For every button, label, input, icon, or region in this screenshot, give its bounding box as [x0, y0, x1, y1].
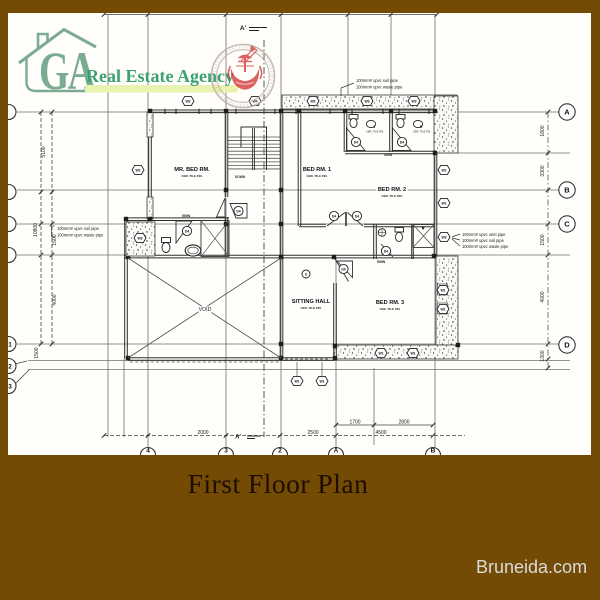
- svg-text:3300: 3300: [540, 165, 546, 176]
- svg-text:CER. TILE FIN.: CER. TILE FIN.: [382, 194, 403, 198]
- svg-text:W2: W2: [135, 168, 140, 172]
- svg-text:D: D: [564, 341, 570, 350]
- svg-text:W3: W3: [137, 236, 142, 240]
- svg-text:1800: 1800: [366, 10, 373, 14]
- svg-text:W3: W3: [364, 99, 369, 103]
- svg-text:A: A: [564, 108, 570, 117]
- svg-text:500N: 500N: [377, 260, 386, 264]
- svg-text:CER. TILE FIN.: CER. TILE FIN.: [413, 130, 431, 134]
- svg-text:VOID: VOID: [199, 307, 212, 313]
- svg-text:W1: W1: [319, 379, 324, 383]
- svg-text:1700: 1700: [349, 420, 360, 426]
- svg-text:A: A: [334, 448, 339, 455]
- svg-text:D4: D4: [384, 249, 388, 253]
- svg-text:4: 4: [146, 448, 150, 455]
- svg-text:2500: 2500: [307, 430, 318, 436]
- svg-text:3: 3: [8, 383, 12, 390]
- svg-text:D4: D4: [236, 209, 240, 213]
- svg-text:10800: 10800: [33, 223, 39, 237]
- svg-text:4000: 4000: [540, 291, 546, 302]
- svg-text:BED RM. 1: BED RM. 1: [303, 167, 331, 173]
- svg-text:S: S: [305, 272, 307, 276]
- svg-text:B: B: [564, 186, 570, 195]
- svg-text:MR. BED RM.: MR. BED RM.: [174, 167, 210, 173]
- svg-text:5100: 5100: [41, 146, 47, 157]
- svg-text:2800: 2800: [398, 420, 409, 426]
- svg-text:2: 2: [278, 448, 282, 455]
- svg-text:2300: 2300: [311, 10, 318, 14]
- svg-text:CER. TILE FIN.: CER. TILE FIN.: [366, 130, 384, 134]
- svg-text:2800: 2800: [123, 10, 130, 14]
- svg-text:W1: W1: [441, 201, 446, 205]
- svg-text:2300: 2300: [250, 10, 257, 14]
- svg-text:W1: W1: [378, 351, 383, 355]
- svg-text:CER. TILE FIN.: CER. TILE FIN.: [307, 174, 328, 178]
- svg-text:1: 1: [8, 341, 12, 348]
- svg-text:100mm# upvc soil pipe: 100mm# upvc soil pipe: [462, 238, 505, 243]
- svg-text:DOWN: DOWN: [235, 175, 246, 179]
- svg-text:W1: W1: [410, 351, 415, 355]
- svg-text:1500: 1500: [34, 347, 40, 358]
- svg-text:4500: 4500: [375, 430, 386, 436]
- svg-text:BED RM. 3: BED RM. 3: [376, 300, 404, 306]
- svg-text:SITTING HALL: SITTING HALL: [292, 299, 331, 305]
- svg-text:A': A': [235, 435, 241, 441]
- svg-text:1300: 1300: [540, 350, 546, 361]
- svg-text:100mm# upvc soil pipe: 100mm# upvc soil pipe: [356, 78, 399, 83]
- svg-text:100mm# upvc vent pipe: 100mm# upvc vent pipe: [462, 232, 506, 237]
- svg-text:3800: 3800: [184, 10, 191, 14]
- svg-text:CER. TILE FIN.: CER. TILE FIN.: [301, 306, 322, 310]
- svg-text:500N: 500N: [384, 153, 393, 157]
- svg-text:A': A': [240, 25, 247, 32]
- svg-text:4000: 4000: [52, 294, 58, 305]
- svg-text:W1: W1: [440, 288, 445, 292]
- svg-text:D4: D4: [354, 140, 358, 144]
- svg-text:CER. TILE FIN.: CER. TILE FIN.: [380, 307, 401, 311]
- svg-text:3: 3: [224, 448, 228, 455]
- svg-text:CER. TILE FIN.: CER. TILE FIN.: [182, 174, 203, 178]
- svg-text:D4: D4: [400, 140, 404, 144]
- svg-text:BED RM. 2: BED RM. 2: [378, 187, 406, 193]
- svg-text:W1: W1: [441, 168, 446, 172]
- svg-text:D4: D4: [341, 267, 345, 271]
- svg-text:500N: 500N: [182, 214, 191, 218]
- svg-text:1500: 1500: [540, 234, 546, 245]
- svg-text:W2: W2: [310, 99, 315, 103]
- svg-text:100mm# upvc waste pipe: 100mm# upvc waste pipe: [462, 244, 509, 249]
- svg-text:2: 2: [8, 363, 12, 370]
- svg-text:100mm# upvc soil pipe: 100mm# upvc soil pipe: [57, 226, 100, 231]
- svg-text:W3: W3: [441, 235, 446, 239]
- svg-text:1700: 1700: [411, 10, 418, 14]
- svg-text:2000: 2000: [197, 430, 208, 436]
- svg-text:B: B: [431, 448, 436, 455]
- svg-text:W1: W1: [294, 379, 299, 383]
- svg-text:1800: 1800: [540, 125, 546, 136]
- svg-text:W2: W2: [185, 99, 190, 103]
- svg-text:100mm# upvc waste pipe: 100mm# upvc waste pipe: [57, 233, 104, 238]
- svg-text:1500: 1500: [52, 234, 58, 245]
- svg-text:W1: W1: [440, 307, 445, 311]
- svg-text:W3: W3: [411, 99, 416, 103]
- svg-text:100mm# upvc waste pipe: 100mm# upvc waste pipe: [356, 85, 403, 90]
- svg-text:D4: D4: [355, 214, 359, 218]
- svg-text:D4: D4: [185, 229, 189, 233]
- svg-text:C: C: [564, 220, 570, 229]
- svg-text:D4: D4: [332, 214, 336, 218]
